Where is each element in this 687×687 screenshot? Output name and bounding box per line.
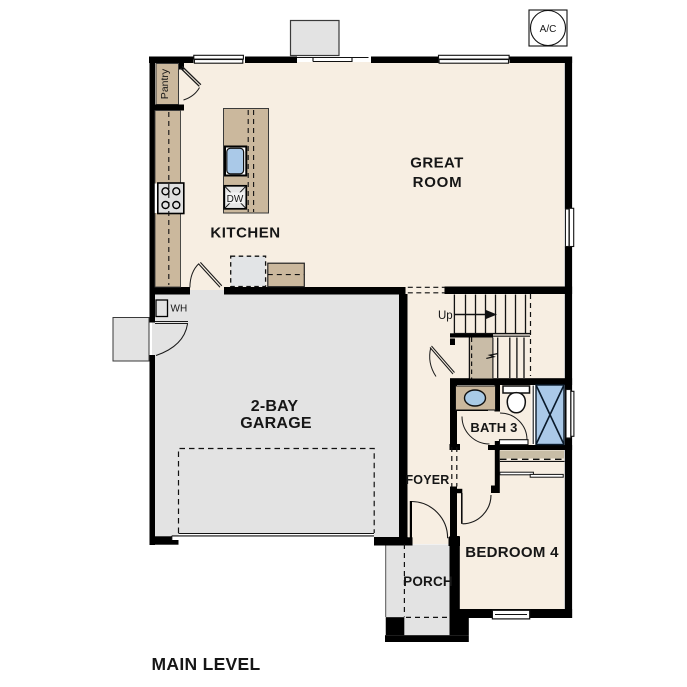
svg-text:DW: DW xyxy=(227,194,244,205)
svg-text:WH: WH xyxy=(171,303,188,314)
svg-text:ROOM: ROOM xyxy=(413,174,463,191)
svg-text:Pantry: Pantry xyxy=(159,68,171,99)
svg-text:KITCHEN: KITCHEN xyxy=(210,225,280,242)
svg-text:MAIN LEVEL: MAIN LEVEL xyxy=(152,654,261,674)
svg-text:2-BAY: 2-BAY xyxy=(251,398,299,415)
svg-text:GARAGE: GARAGE xyxy=(240,415,312,432)
svg-text:PORCH: PORCH xyxy=(403,574,453,589)
svg-text:A/C: A/C xyxy=(540,24,557,35)
svg-text:FOYER: FOYER xyxy=(405,473,449,487)
svg-text:BEDROOM 4: BEDROOM 4 xyxy=(465,544,559,561)
svg-text:GREAT: GREAT xyxy=(410,155,463,172)
svg-text:Up: Up xyxy=(438,310,453,322)
svg-text:BATH 3: BATH 3 xyxy=(470,420,517,435)
